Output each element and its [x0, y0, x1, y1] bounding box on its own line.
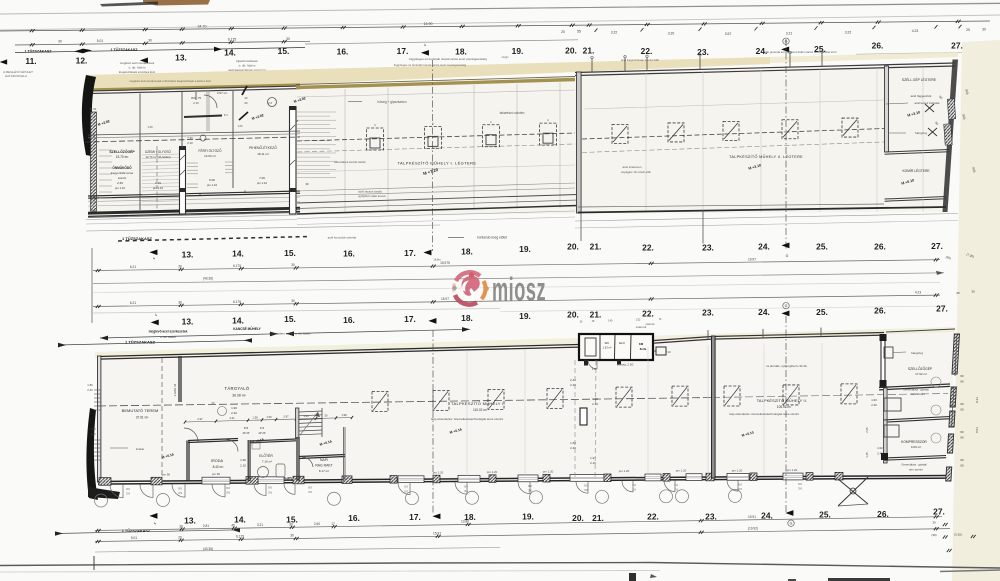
- svg-text:pm 90: pm 90: [162, 473, 170, 477]
- svg-text:20.: 20.: [572, 513, 584, 523]
- svg-text:KOMÍR LÉGTERE: KOMÍR LÉGTERE: [902, 168, 930, 173]
- svg-text:14.: 14.: [232, 316, 244, 326]
- svg-text:TALPKÉSZÍTŐ MŰHELY II.: TALPKÉSZÍTŐ MŰHELY II.: [757, 398, 808, 403]
- svg-text:2.10: 2.10: [592, 402, 598, 406]
- svg-text:1.98: 1.98: [341, 413, 347, 417]
- svg-text:1.90: 1.90: [231, 406, 237, 410]
- svg-text:PIHENŐ-ÉTKEZŐ: PIHENŐ-ÉTKEZŐ: [249, 145, 277, 150]
- svg-text:14.: 14.: [234, 515, 246, 525]
- svg-text:15,975: 15,975: [440, 261, 450, 265]
- svg-text:meglévő acél szerkezetek: meglévő acél szerkezetek: [120, 61, 155, 65]
- svg-text:RAG RAKT: RAG RAKT: [315, 464, 332, 468]
- svg-text:15.: 15.: [284, 314, 296, 324]
- svg-text:9 0: 9 0: [308, 485, 312, 489]
- svg-text:17.: 17.: [404, 248, 416, 258]
- svg-text:5.01: 5.01: [97, 39, 104, 43]
- svg-text:3 6: 3 6: [178, 491, 182, 495]
- svg-text:2.40: 2.40: [877, 452, 883, 456]
- svg-text:16.: 16.: [343, 249, 355, 259]
- svg-text:pm 1.20: pm 1.20: [433, 471, 444, 475]
- svg-text:bontandó üveg előtét: bontandó üveg előtét: [477, 236, 507, 240]
- svg-text:(43.36): (43.36): [203, 277, 213, 281]
- svg-text:16.: 16.: [343, 315, 355, 325]
- svg-text:25: 25: [956, 291, 960, 295]
- svg-text:3 6: 3 6: [268, 490, 272, 494]
- svg-text:19.: 19.: [522, 511, 534, 521]
- svg-text:55: 55: [577, 30, 581, 34]
- svg-text:Gerendázta · gázttal: Gerendázta · gázttal: [901, 463, 927, 467]
- svg-text:pm 1.10: pm 1.10: [207, 183, 218, 187]
- svg-text:meglévő acél szerkezetek ú.db: meglévő acél szerkezetek ú.db.födém kieg…: [129, 79, 211, 83]
- svg-text:11.: 11.: [25, 56, 36, 66]
- svg-text:20.: 20.: [565, 46, 577, 56]
- svg-text:2.97: 2.97: [197, 417, 203, 421]
- svg-text:105.51 m²: 105.51 m²: [777, 405, 791, 409]
- svg-text:(43.36): (43.36): [203, 547, 213, 551]
- svg-text:19.: 19.: [519, 244, 531, 254]
- svg-text:1.80: 1.80: [90, 427, 96, 431]
- svg-text:1.40: 1.40: [608, 320, 613, 323]
- svg-text:acél lemez burkolat: acél lemez burkolat: [915, 101, 940, 105]
- svg-text:30: 30: [982, 28, 986, 32]
- svg-text:1.20: 1.20: [303, 414, 309, 418]
- svg-text:13.: 13.: [175, 53, 187, 63]
- svg-text:1.36: 1.36: [592, 397, 598, 401]
- svg-text:acél szelemen: acél szelemen: [622, 165, 642, 169]
- svg-text:5.06: 5.06: [209, 178, 215, 182]
- svg-text:12.70 m² (db.felület): 12.70 m² (db.felület): [145, 155, 170, 159]
- svg-text:60: 60: [960, 458, 964, 462]
- svg-text:3 6: 3 6: [126, 491, 130, 495]
- svg-text:6 =: 6 =: [224, 113, 228, 117]
- svg-text:19.: 19.: [512, 46, 524, 56]
- svg-text:2.49: 2.49: [155, 181, 161, 185]
- svg-text:6.175: 6.175: [233, 264, 241, 268]
- svg-text:21.: 21.: [592, 513, 604, 523]
- svg-text:9 0: 9 0: [126, 487, 130, 491]
- svg-text:25.: 25.: [816, 307, 828, 317]
- svg-text:17.: 17.: [409, 512, 421, 522]
- svg-text:9 0: 9 0: [226, 486, 230, 490]
- svg-text:G: G: [785, 304, 788, 308]
- svg-text:acél konzolok cseréje: acél konzolok cseréje: [328, 236, 357, 240]
- svg-text:9 0: 9 0: [404, 485, 408, 489]
- svg-text:9 0: 9 0: [738, 482, 742, 486]
- svg-text:9.60 m²: 9.60 m²: [911, 445, 921, 449]
- svg-text:2.10: 2.10: [193, 101, 199, 105]
- svg-text:1.02: 1.02: [877, 446, 883, 450]
- svg-text:15.: 15.: [284, 248, 296, 258]
- svg-text:1 TŰZSZAKASZ: 1 TŰZSZAKASZ: [122, 236, 153, 241]
- svg-text:pm 1.20: pm 1.20: [676, 469, 687, 473]
- svg-text:ÖNMŰKÖDŐ: ÖNMŰKÖDŐ: [112, 165, 132, 170]
- svg-text:24.: 24.: [761, 510, 773, 520]
- svg-text:30: 30: [179, 524, 183, 528]
- svg-text:3.22: 3.22: [845, 30, 852, 34]
- svg-text:hangzug: hangzug: [911, 351, 923, 355]
- svg-text:8a 8a: 8a 8a: [640, 347, 647, 351]
- svg-text:13.: 13.: [182, 316, 194, 326]
- svg-text:(19.92): (19.92): [748, 527, 758, 531]
- svg-text:BEMUTATÓ TEREM: BEMUTATÓ TEREM: [122, 408, 159, 413]
- svg-text:60: 60: [960, 464, 964, 468]
- svg-text:pm 1.20: pm 1.20: [487, 470, 498, 474]
- svg-text:SZÉLL.GÉP LÉGTERE: SZÉLL.GÉP LÉGTERE: [902, 77, 937, 82]
- svg-text:3.20: 3.20: [668, 31, 675, 35]
- svg-text:ELŐTÉR: ELŐTÉR: [259, 453, 273, 458]
- svg-text:3.22: 3.22: [611, 31, 618, 35]
- svg-text:1.53 m²: 1.53 m²: [603, 346, 612, 350]
- svg-text:SZELLŐZŐGÉP: SZELLŐZŐGÉP: [109, 149, 135, 154]
- svg-text:TALPKÉSZÍTŐ MŰHELY II. LÉGTERE: TALPKÉSZÍTŐ MŰHELY II. LÉGTERE: [729, 154, 803, 159]
- svg-text:elbontásra kerülő tartók: elbontásra kerülő tartók: [334, 160, 366, 164]
- svg-text:acél rácsos tartók: acél rácsos tartók: [358, 190, 382, 194]
- svg-text:15.97: 15.97: [433, 532, 441, 536]
- svg-text:ta dornlás, új Progtherm 32 db: ta dornlás, új Progtherm 32 db.: [766, 364, 807, 368]
- svg-text:TALPKÉSZÍTŐ MŰHELY I.: TALPKÉSZÍTŐ MŰHELY I.: [451, 401, 505, 406]
- svg-text:1 TŰZSZAKASZ: 1 TŰZSZAKASZ: [125, 340, 156, 345]
- svg-text:16.: 16.: [337, 46, 349, 56]
- svg-text:115.02 m²: 115.02 m²: [473, 408, 487, 412]
- svg-text:60: 60: [960, 430, 964, 434]
- svg-text:3 6: 3 6: [404, 489, 408, 493]
- svg-text:27.: 27.: [951, 41, 963, 51]
- svg-text:4.23: 4.23: [915, 291, 921, 295]
- svg-text:ú. db. födém: ú. db. födém: [239, 64, 256, 68]
- svg-text:csarnok: csarnok: [645, 322, 655, 326]
- svg-text:2.10: 2.10: [240, 464, 246, 468]
- svg-text:HATÁRVONALA: HATÁRVONALA: [5, 74, 27, 78]
- svg-text:30: 30: [971, 290, 975, 294]
- svg-text:2.40: 2.40: [231, 411, 237, 415]
- svg-text:27.: 27.: [933, 506, 945, 516]
- svg-text:2P 2P: 2P 2P: [242, 431, 249, 435]
- svg-text:G: G: [786, 254, 789, 258]
- svg-text:szigin: szigin: [501, 55, 509, 59]
- svg-text:7.30: 7.30: [187, 136, 193, 140]
- svg-text:8+(2P): 8+(2P): [284, 476, 292, 480]
- svg-text:26.: 26.: [874, 306, 886, 316]
- svg-text:22.: 22.: [641, 46, 653, 56]
- svg-text:ú. db. födém: ú. db. födém: [129, 66, 146, 70]
- svg-text:2.10: 2.10: [665, 350, 671, 354]
- svg-text:8: 8: [199, 193, 201, 197]
- svg-text:9 0: 9 0: [178, 486, 182, 490]
- svg-text:2.49: 2.49: [117, 181, 123, 185]
- svg-text:3.57 m²: 3.57 m²: [217, 91, 227, 95]
- svg-text:36.08 m²: 36.08 m²: [232, 394, 246, 398]
- svg-text:FÉRFI ÖLTÖZŐ: FÉRFI ÖLTÖZŐ: [199, 148, 222, 153]
- svg-text:9 0: 9 0: [464, 484, 468, 488]
- svg-text:TÁRGYALÓ: TÁRGYALÓ: [225, 386, 250, 391]
- svg-text:27.: 27.: [936, 304, 948, 314]
- svg-text:30: 30: [178, 265, 182, 269]
- svg-text:18.11 m²: 18.11 m²: [257, 152, 269, 156]
- svg-text:30: 30: [58, 40, 62, 44]
- svg-text:1.52: 1.52: [636, 319, 641, 322]
- svg-text:7.06: 7.06: [259, 176, 265, 180]
- svg-text:6.175: 6.175: [233, 300, 241, 304]
- svg-text:6.21: 6.21: [130, 265, 136, 269]
- svg-text:8.40 m²: 8.40 m²: [213, 465, 224, 469]
- svg-text:27.: 27.: [931, 241, 943, 251]
- svg-text:30: 30: [290, 534, 294, 538]
- svg-text:ú. db. födém: ú. db. födém: [160, 335, 177, 339]
- svg-text:12.63 m²: 12.63 m²: [204, 154, 216, 158]
- svg-text:2.40: 2.40: [90, 432, 96, 436]
- svg-text:3.57: 3.57: [725, 32, 732, 36]
- svg-text:pm 1.20: pm 1.20: [732, 468, 743, 472]
- svg-text:fm 90: fm 90: [90, 107, 97, 111]
- svg-text:terv szerint: terv szerint: [911, 392, 925, 396]
- svg-text:1 TŰZSZAKASZ: 1 TŰZSZAKASZ: [111, 47, 139, 52]
- svg-text:20.: 20.: [567, 242, 579, 252]
- svg-text:terv szerint: terv szerint: [909, 468, 923, 472]
- svg-text:18.: 18.: [461, 247, 473, 257]
- svg-text:WC: WC: [605, 341, 610, 345]
- svg-text:ÜZEMI FOLYOSÓ: ÜZEMI FOLYOSÓ: [145, 149, 171, 154]
- svg-text:amennyiben szerint ú. db. födé: amennyiben szerint ú. db. födém: [269, 332, 312, 336]
- svg-text:pm 1.10: pm 1.10: [257, 181, 268, 185]
- svg-text:21.: 21.: [590, 242, 602, 252]
- svg-text:pm 90: pm 90: [212, 472, 220, 476]
- svg-text:18.: 18.: [455, 46, 467, 56]
- svg-text:13.: 13.: [184, 515, 196, 525]
- svg-text:3 6: 3 6: [226, 491, 230, 495]
- svg-text:1.63: 1.63: [871, 398, 877, 402]
- svg-text:2.97: 2.97: [283, 415, 289, 419]
- svg-text:4.23: 4.23: [912, 29, 919, 33]
- svg-text:30: 30: [289, 523, 293, 527]
- svg-text:24.: 24.: [758, 307, 770, 317]
- svg-text:KOMPRESSZOR: KOMPRESSZOR: [901, 440, 927, 444]
- svg-text:több gerenda és burkolat a föd: több gerenda és burkolat a födém tartós …: [764, 50, 837, 54]
- svg-text:2 Ø: 2 Ø: [592, 367, 596, 371]
- svg-text:SZELLŐZŐGÉP: SZELLŐZŐGÉP: [908, 366, 933, 371]
- svg-text:acél kiegészítések szerint tö: acél kiegészítések szerint több: [621, 58, 660, 62]
- svg-text:2.40: 2.40: [871, 403, 877, 407]
- svg-text:IRODA: IRODA: [211, 459, 223, 463]
- svg-text:1.90: 1.90: [240, 458, 246, 462]
- svg-text:2.10: 2.10: [187, 141, 193, 145]
- svg-text:(3.20): (3.20): [954, 533, 962, 537]
- svg-text:15.97: 15.97: [441, 297, 449, 301]
- svg-text:NAPI: NAPI: [320, 458, 328, 462]
- svg-text:22.: 22.: [647, 512, 659, 522]
- svg-text:1.06: 1.06: [237, 124, 243, 128]
- svg-text:15.90: 15.90: [424, 22, 433, 26]
- svg-text:14.: 14.: [232, 249, 244, 259]
- svg-text:pm 1.20: pm 1.20: [619, 469, 630, 473]
- svg-text:↳: ↳: [153, 522, 156, 526]
- svg-text:17.92 m²: 17.92 m²: [915, 372, 927, 376]
- svg-text:pm 1.20: pm 1.20: [543, 470, 554, 474]
- svg-text:37.91 m²: 37.91 m²: [136, 416, 149, 420]
- svg-text:2.0/AD 18: 2.0/AD 18: [173, 383, 177, 396]
- svg-text:↳: ↳: [423, 43, 426, 47]
- svg-text:gyűjtősín alatt kövek: gyűjtősín alatt kövek: [358, 194, 386, 198]
- svg-text:26.: 26.: [872, 41, 884, 51]
- svg-text:kiegyenlítők tervei: kiegyenlítők tervei: [111, 171, 134, 175]
- svg-text:pm 1.16: pm 1.16: [153, 186, 164, 190]
- svg-text:30: 30: [305, 182, 309, 186]
- svg-text:20: 20: [178, 535, 182, 539]
- svg-text:függőleges és burkolati részek: függőleges és burkolati részek tartós te…: [394, 63, 467, 67]
- svg-text:9 9: 9 9: [260, 426, 265, 430]
- svg-text:30: 30: [286, 37, 290, 41]
- svg-text:60: 60: [960, 374, 964, 378]
- svg-text:23.: 23.: [702, 242, 714, 252]
- svg-text:13.: 13.: [182, 250, 194, 260]
- svg-text:3.21: 3.21: [786, 31, 793, 35]
- svg-text:25.: 25.: [816, 242, 828, 252]
- svg-text:30: 30: [932, 521, 936, 525]
- svg-text:1.38: 1.38: [252, 416, 258, 420]
- svg-text:pm 1.20: pm 1.20: [787, 468, 798, 472]
- svg-text:23.: 23.: [702, 308, 714, 318]
- svg-text:WC .75: WC .75: [191, 96, 201, 100]
- svg-text:(30): (30): [931, 533, 936, 537]
- svg-text:kijavító felületek: kijavító felületek: [236, 59, 258, 63]
- svg-text:8.17 m²: 8.17 m²: [319, 469, 329, 473]
- svg-text:↳: ↳: [152, 257, 155, 261]
- svg-text:2.65: 2.65: [865, 427, 869, 433]
- svg-text:16.: 16.: [348, 513, 360, 523]
- svg-text:6.175: 6.175: [228, 38, 236, 42]
- svg-text:2.81: 2.81: [203, 524, 209, 528]
- svg-text:17.: 17.: [397, 46, 409, 56]
- svg-text:KANCSÉ MŰHELY: KANCSÉ MŰHELY: [233, 326, 261, 331]
- svg-text:20: 20: [561, 30, 565, 34]
- svg-text:19.97: 19.97: [748, 257, 756, 261]
- svg-text:1 TŰZSZAKASZ: 1 TŰZSZAKASZ: [122, 528, 151, 533]
- svg-text:22.: 22.: [642, 308, 654, 318]
- svg-text:1.50: 1.50: [266, 415, 272, 419]
- svg-text:3.21: 3.21: [257, 523, 263, 527]
- svg-text:8.21: 8.21: [975, 397, 979, 403]
- svg-text:60: 60: [960, 408, 964, 412]
- svg-text:34.70: 34.70: [198, 24, 207, 28]
- svg-text:1 TŰZSZAKASZ: 1 TŰZSZAKASZ: [25, 48, 53, 53]
- svg-text:8 8: 8 8: [244, 426, 249, 430]
- svg-text:3.21: 3.21: [229, 416, 235, 420]
- svg-text:30: 30: [178, 301, 182, 305]
- svg-text:20.: 20.: [567, 310, 579, 320]
- svg-text:takarészó szintén: takarészó szintén: [500, 111, 525, 115]
- svg-text:12.: 12.: [76, 55, 88, 65]
- svg-text:6.175: 6.175: [236, 534, 244, 538]
- svg-text:30: 30: [148, 39, 152, 43]
- svg-text:1.80: 1.80: [87, 383, 93, 387]
- svg-text:30: 30: [291, 299, 295, 303]
- svg-text:meglévő acél szerkezetek: meglévő acél szerkezetek: [149, 330, 188, 334]
- svg-text:45: 45: [231, 523, 235, 527]
- svg-text:1.45: 1.45: [865, 452, 869, 458]
- svg-text:14.: 14.: [224, 47, 236, 57]
- svg-text:60: 60: [960, 436, 964, 440]
- svg-text:7.16 m²: 7.16 m²: [262, 460, 272, 464]
- svg-text:3 6: 3 6: [798, 487, 802, 491]
- svg-text:9 0: 9 0: [268, 486, 272, 490]
- svg-text:19.: 19.: [519, 311, 531, 321]
- svg-text:KM: KM: [639, 342, 644, 346]
- svg-text:25.: 25.: [819, 510, 831, 520]
- svg-text:hangzug: hangzug: [915, 131, 927, 135]
- svg-text:TALPKÉSZÍTŐ MŰHELY I. LÉGTERE: TALPKÉSZÍTŐ MŰHELY I. LÉGTERE: [398, 161, 477, 166]
- svg-text:9 0: 9 0: [798, 482, 802, 486]
- svg-text:2.40: 2.40: [87, 388, 93, 392]
- svg-text:5.01: 5.01: [131, 536, 137, 540]
- svg-text:anyagjöv. idn szerk elők: anyagjöv. idn szerk elők: [621, 170, 651, 174]
- svg-text:25: 25: [966, 28, 970, 32]
- svg-text:22.: 22.: [642, 242, 654, 252]
- svg-text:Gerendázta · gázttal: Gerendázta · gázttal: [903, 388, 929, 392]
- svg-text:8.91: 8.91: [975, 427, 979, 433]
- svg-text:pm 1.10: pm 1.10: [115, 186, 126, 190]
- svg-text:21.: 21.: [583, 46, 595, 56]
- svg-text:21.: 21.: [590, 310, 602, 320]
- svg-text:2P 2P: 2P 2P: [258, 431, 265, 435]
- svg-text:18.: 18.: [461, 313, 473, 323]
- svg-text:ELŐ: ELŐ: [619, 340, 625, 345]
- svg-text:26.: 26.: [874, 242, 886, 252]
- svg-text:2·0: 2·0: [268, 101, 272, 105]
- svg-text:3 6: 3 6: [308, 490, 312, 494]
- svg-text:30: 30: [291, 263, 295, 267]
- svg-text:60: 60: [960, 380, 964, 384]
- svg-text:8: 8: [244, 190, 246, 194]
- svg-text:miosz: miosz: [492, 271, 546, 308]
- svg-text:↳: ↳: [154, 313, 157, 317]
- svg-text:szerint: szerint: [118, 176, 126, 180]
- svg-text:6.21: 6.21: [130, 301, 136, 305]
- svg-text:1.08: 1.08: [147, 125, 153, 129]
- svg-text:13.80: 13.80: [461, 520, 469, 524]
- svg-text:30: 30: [325, 414, 328, 418]
- svg-text:acél függesztők: acél függesztők: [911, 94, 932, 98]
- svg-text:19.91: 19.91: [748, 515, 756, 519]
- svg-text:kirakat: kirakat: [136, 447, 144, 451]
- svg-text:függőleges és burkolati részek: függőleges és burkolati részek tartós te…: [409, 57, 487, 61]
- svg-text:2.60: 2.60: [314, 522, 320, 526]
- svg-text:24.: 24.: [758, 242, 770, 252]
- svg-text:hőszig + gipszkarton: hőszig + gipszkarton: [377, 100, 406, 104]
- svg-text:13.70 m²: 13.70 m²: [116, 155, 129, 159]
- svg-text:csarnok: csarnok: [636, 325, 647, 329]
- svg-text:15.: 15.: [278, 46, 290, 56]
- svg-text:60: 60: [960, 402, 964, 406]
- svg-text:G: G: [790, 522, 793, 526]
- svg-text:17: 17: [331, 522, 335, 526]
- svg-text:3 6: 3 6: [464, 489, 468, 493]
- svg-text:17.: 17.: [404, 314, 416, 324]
